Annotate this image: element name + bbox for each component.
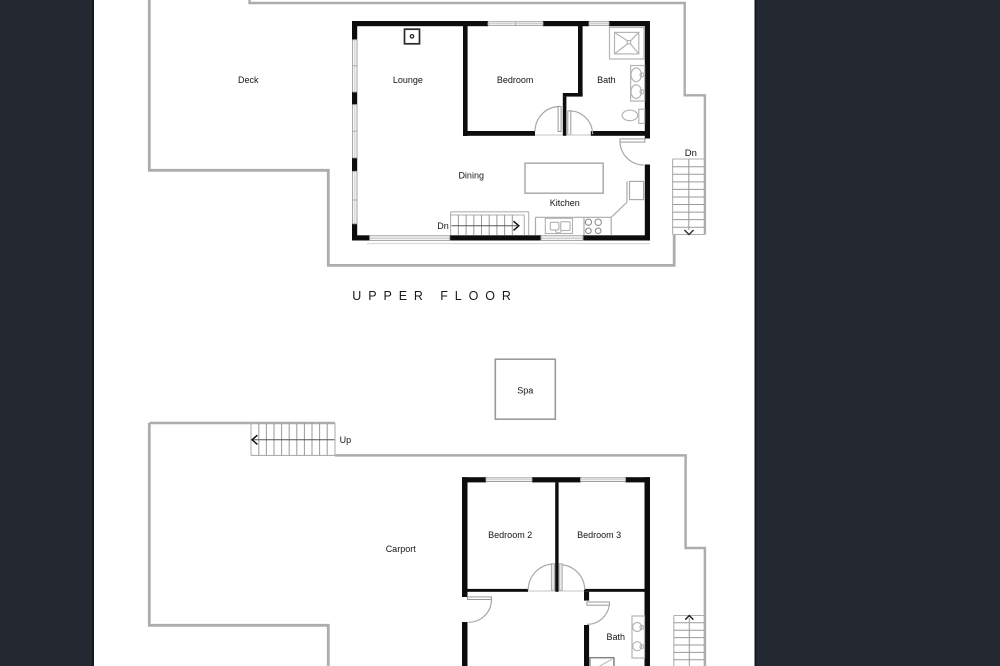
svg-text:Dining: Dining xyxy=(458,170,484,180)
svg-text:Deck: Deck xyxy=(238,75,259,85)
svg-text:UPPER FLOOR: UPPER FLOOR xyxy=(352,289,518,303)
svg-text:Up: Up xyxy=(340,435,352,445)
svg-text:Bedroom: Bedroom xyxy=(497,75,534,85)
svg-text:Spa: Spa xyxy=(517,386,533,396)
svg-text:Lounge: Lounge xyxy=(393,75,423,85)
svg-text:Dn: Dn xyxy=(437,221,449,231)
svg-text:Kitchen: Kitchen xyxy=(550,198,580,208)
svg-text:Bath: Bath xyxy=(597,75,616,85)
svg-text:Bedroom 3: Bedroom 3 xyxy=(577,530,621,540)
svg-text:Dn: Dn xyxy=(685,148,697,159)
svg-text:Bedroom 2: Bedroom 2 xyxy=(488,530,532,540)
svg-text:Carport: Carport xyxy=(386,544,417,554)
svg-text:Bath: Bath xyxy=(606,632,625,642)
